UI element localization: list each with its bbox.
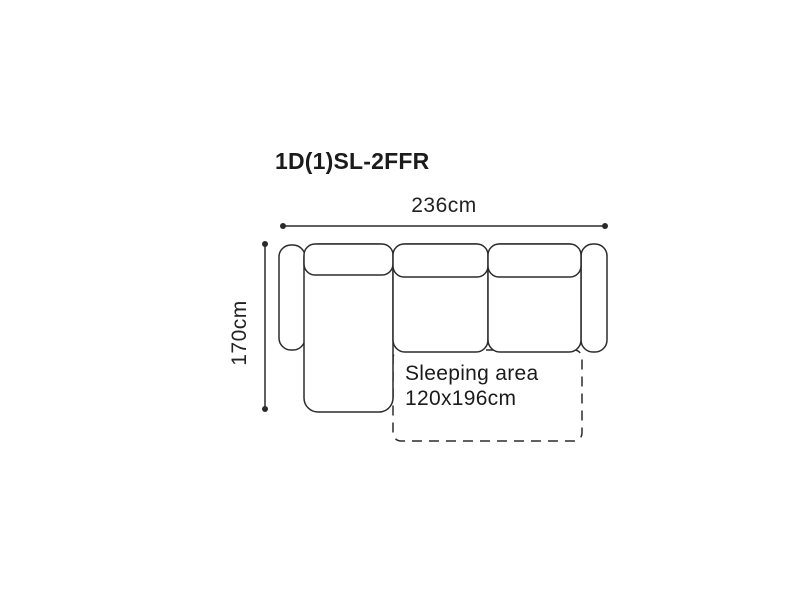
- sofa-dimension-diagram: 1D(1)SL-2FFR 236cm 170cm: [0, 0, 800, 600]
- middle-back-cushion: [393, 244, 488, 277]
- depth-line-endpoint-top-dot: [262, 241, 268, 247]
- right-back-cushion: [488, 244, 581, 277]
- left-armrest: [279, 245, 305, 350]
- right-armrest: [581, 244, 607, 352]
- sleeping-area-label-line2: 120x196cm: [405, 386, 539, 411]
- sleeping-area-label-line1: Sleeping area: [405, 361, 539, 386]
- sofa-floorplan-drawing: [0, 0, 800, 600]
- depth-line-endpoint-bottom-dot: [262, 406, 268, 412]
- chaise-back-cushion: [304, 244, 393, 275]
- sofa-outlines: [279, 244, 607, 441]
- width-line-endpoint-right-dot: [602, 223, 608, 229]
- width-line-endpoint-left-dot: [280, 223, 286, 229]
- sleeping-area-label: Sleeping area 120x196cm: [405, 361, 539, 411]
